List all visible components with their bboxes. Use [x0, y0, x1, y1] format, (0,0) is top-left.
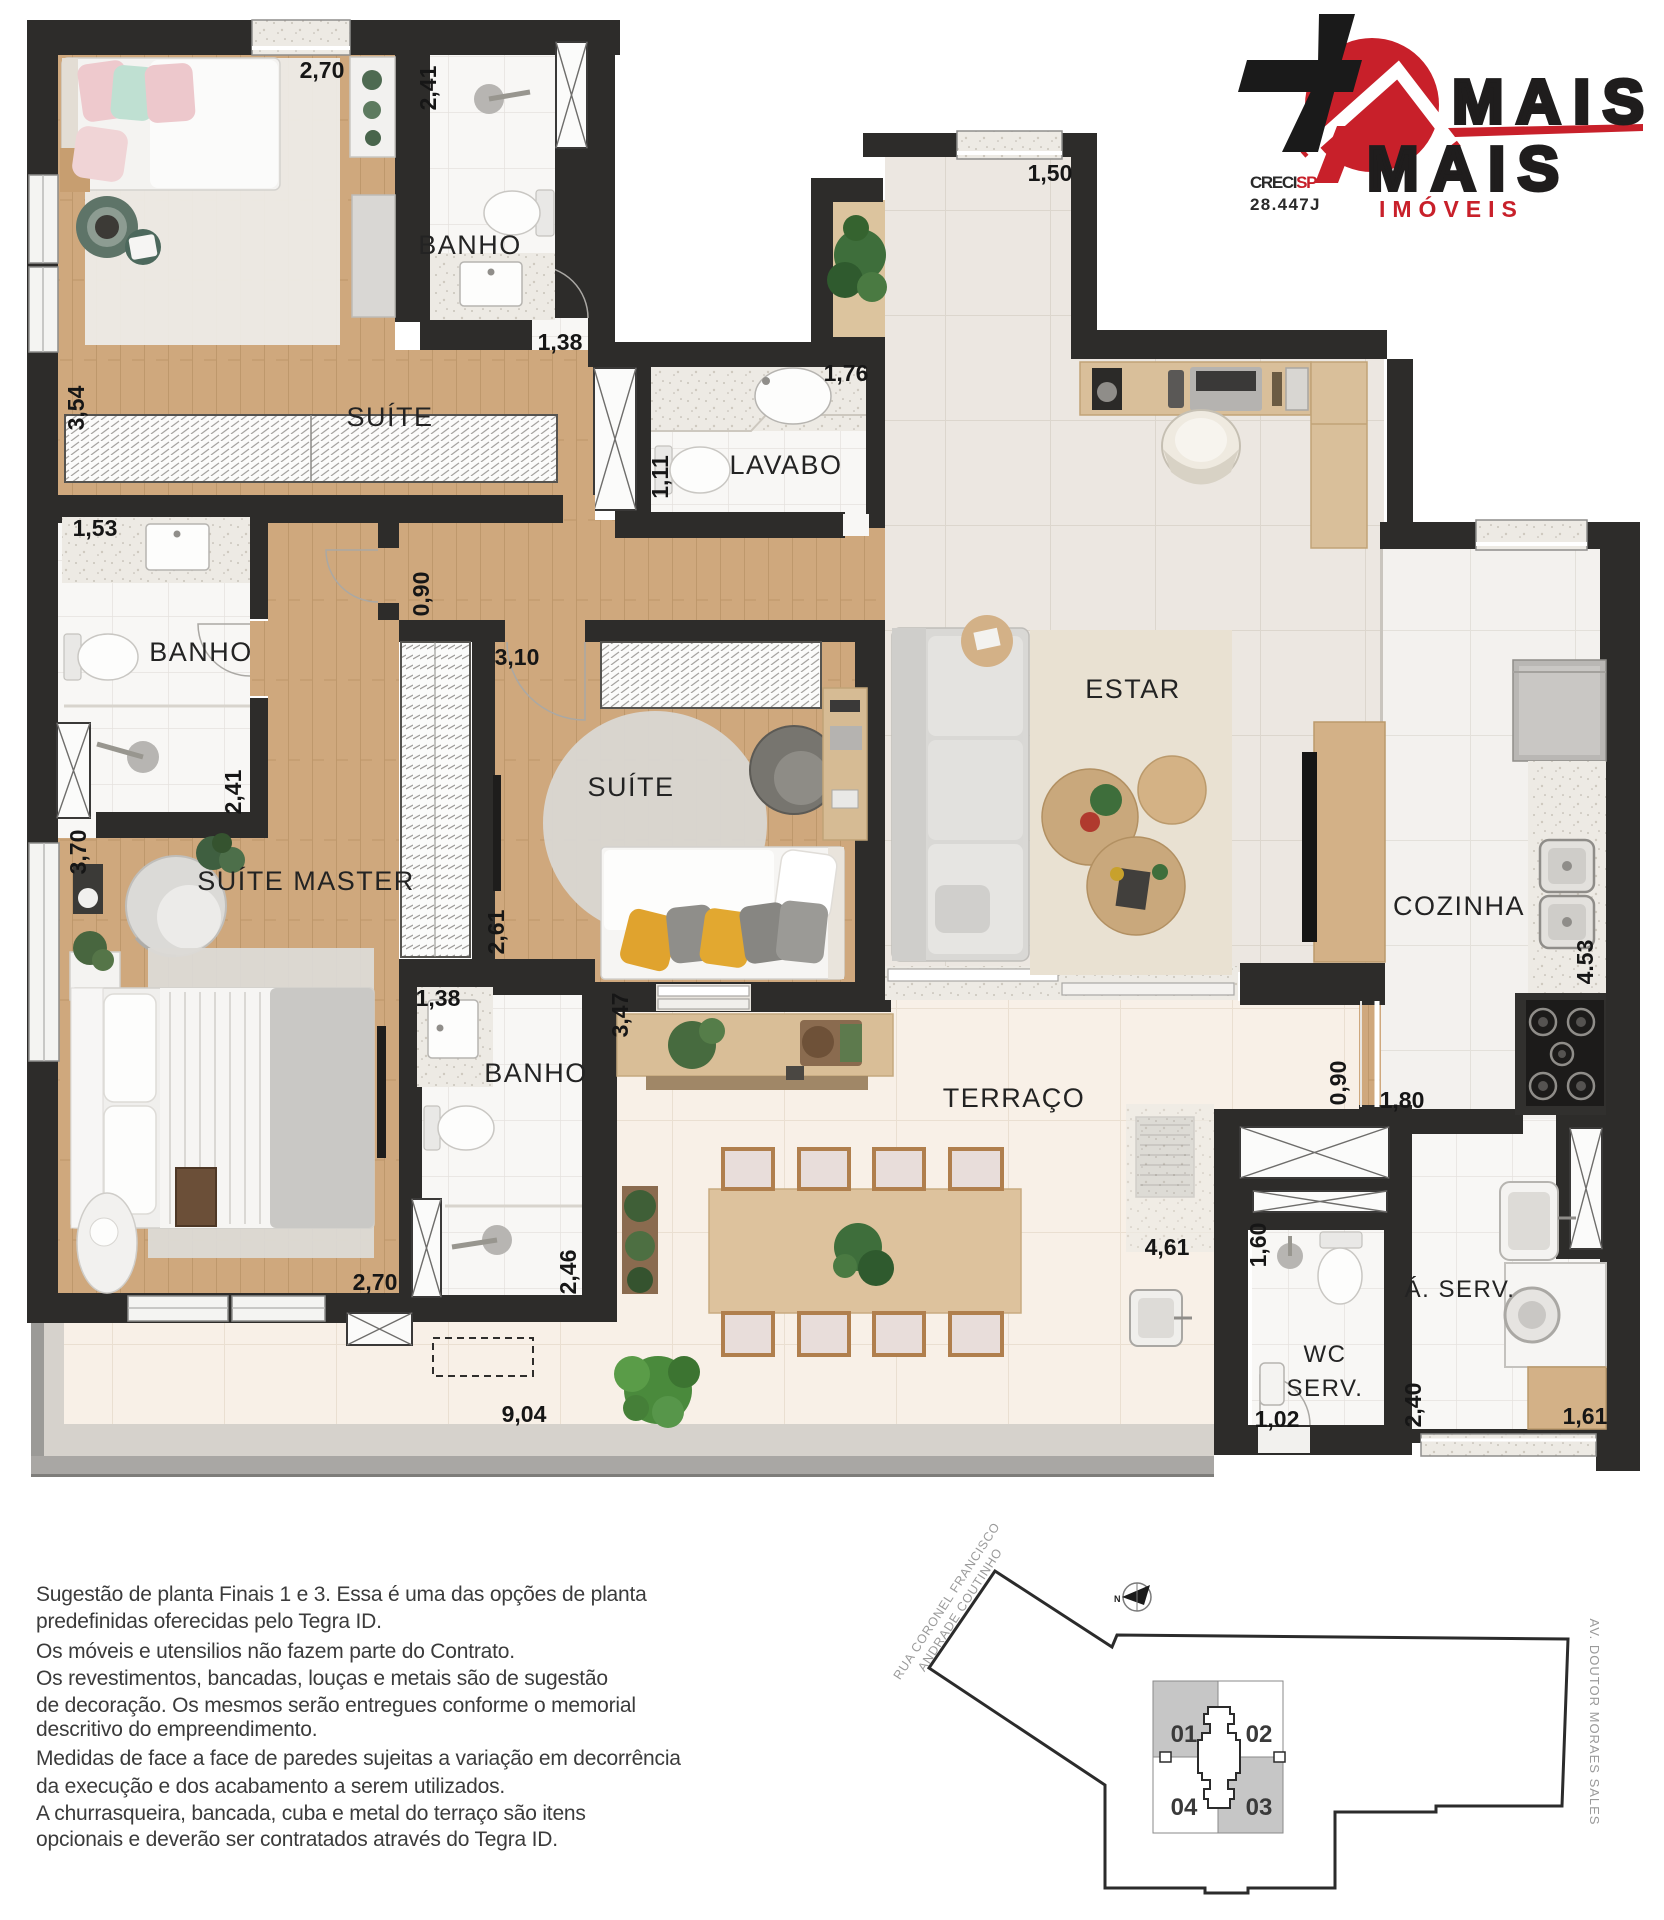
svg-text:SUÍTE: SUÍTE — [587, 772, 674, 802]
svg-text:LAVABO: LAVABO — [729, 450, 842, 480]
svg-text:01: 01 — [1171, 1721, 1198, 1748]
svg-text:4,61: 4,61 — [1145, 1234, 1190, 1260]
svg-text:1,53: 1,53 — [73, 515, 118, 541]
svg-text:0,90: 0,90 — [1325, 1061, 1351, 1106]
svg-text:1,76: 1,76 — [824, 360, 869, 386]
svg-text:9,04: 9,04 — [502, 1401, 547, 1427]
svg-text:3,70: 3,70 — [65, 830, 91, 875]
svg-text:2,40: 2,40 — [1400, 1383, 1426, 1428]
svg-text:4.53: 4.53 — [1572, 940, 1598, 985]
svg-text:Os móveis e utensilios não faz: Os móveis e utensilios não fazem parte d… — [36, 1640, 515, 1663]
svg-text:Á. SERV.: Á. SERV. — [1405, 1276, 1516, 1303]
svg-text:3,54: 3,54 — [63, 385, 89, 430]
svg-text:TERRAÇO: TERRAÇO — [943, 1083, 1086, 1113]
svg-text:1,38: 1,38 — [416, 985, 461, 1011]
svg-text:CRECISP: CRECISP — [1250, 173, 1317, 192]
svg-text:Sugestão de planta Finais 1 e: Sugestão de planta Finais 1 e 3. Essa é … — [36, 1583, 647, 1606]
svg-text:SUÍTE MASTER: SUÍTE MASTER — [197, 866, 415, 896]
svg-text:3,10: 3,10 — [495, 644, 540, 670]
svg-text:MAIS: MAIS — [1367, 135, 1558, 204]
svg-text:1,80: 1,80 — [1380, 1087, 1425, 1113]
svg-text:1,50: 1,50 — [1028, 160, 1073, 186]
svg-text:3,47: 3,47 — [607, 993, 633, 1038]
svg-text:SUÍTE: SUÍTE — [346, 402, 433, 432]
svg-text:04: 04 — [1171, 1794, 1198, 1821]
svg-text:1,02: 1,02 — [1255, 1406, 1300, 1432]
svg-text:SERV.: SERV. — [1287, 1375, 1364, 1402]
svg-text:Medidas de face a face de pare: Medidas de face a face de paredes sujeit… — [36, 1747, 681, 1770]
svg-text:AV. DOUTOR MORAES SALES: AV. DOUTOR MORAES SALES — [1587, 1619, 1602, 1826]
svg-text:2,70: 2,70 — [353, 1269, 398, 1295]
svg-text:predefinidas oferecidas pelo T: predefinidas oferecidas pelo Tegra ID. — [36, 1610, 382, 1633]
svg-text:1,61: 1,61 — [1563, 1403, 1608, 1429]
svg-text:BANHO: BANHO — [484, 1058, 588, 1088]
svg-text:WC: WC — [1304, 1341, 1347, 1368]
svg-text:BANHO: BANHO — [149, 637, 253, 667]
svg-text:MAIS: MAIS — [1452, 68, 1643, 137]
svg-text:de decoração. Os mesmos serão: de decoração. Os mesmos serão entregues … — [36, 1694, 636, 1717]
svg-text:2,46: 2,46 — [555, 1250, 581, 1295]
svg-text:descritivo do empreendimento.: descritivo do empreendimento. — [36, 1718, 317, 1741]
svg-text:BANHO: BANHO — [418, 230, 522, 260]
svg-text:N: N — [1114, 1594, 1121, 1604]
svg-text:A churrasqueira, bancada, cuba: A churrasqueira, bancada, cuba e metal d… — [36, 1802, 586, 1825]
svg-text:1,60: 1,60 — [1245, 1223, 1271, 1268]
svg-text:2,61: 2,61 — [483, 909, 509, 954]
svg-text:1,38: 1,38 — [538, 329, 583, 355]
svg-text:2,41: 2,41 — [220, 769, 246, 814]
svg-text:2,41: 2,41 — [415, 65, 441, 110]
svg-text:Os revestimentos, bancadas, lo: Os revestimentos, bancadas, louças e met… — [36, 1667, 608, 1690]
svg-text:1,11: 1,11 — [647, 455, 673, 499]
svg-text:0,90: 0,90 — [408, 572, 434, 617]
svg-text:opcionais e deverão ser contra: opcionais e deverão ser contratados atra… — [36, 1828, 558, 1851]
svg-text:da execução e dos acabamento a: da execução e dos acabamento a serem uti… — [36, 1775, 505, 1798]
svg-text:2,70: 2,70 — [300, 57, 345, 83]
svg-text:COZINHA: COZINHA — [1393, 891, 1525, 921]
svg-text:03: 03 — [1246, 1794, 1273, 1821]
svg-text:ESTAR: ESTAR — [1085, 674, 1181, 704]
svg-text:IMÓVEIS: IMÓVEIS — [1379, 195, 1524, 222]
svg-text:02: 02 — [1246, 1721, 1273, 1748]
